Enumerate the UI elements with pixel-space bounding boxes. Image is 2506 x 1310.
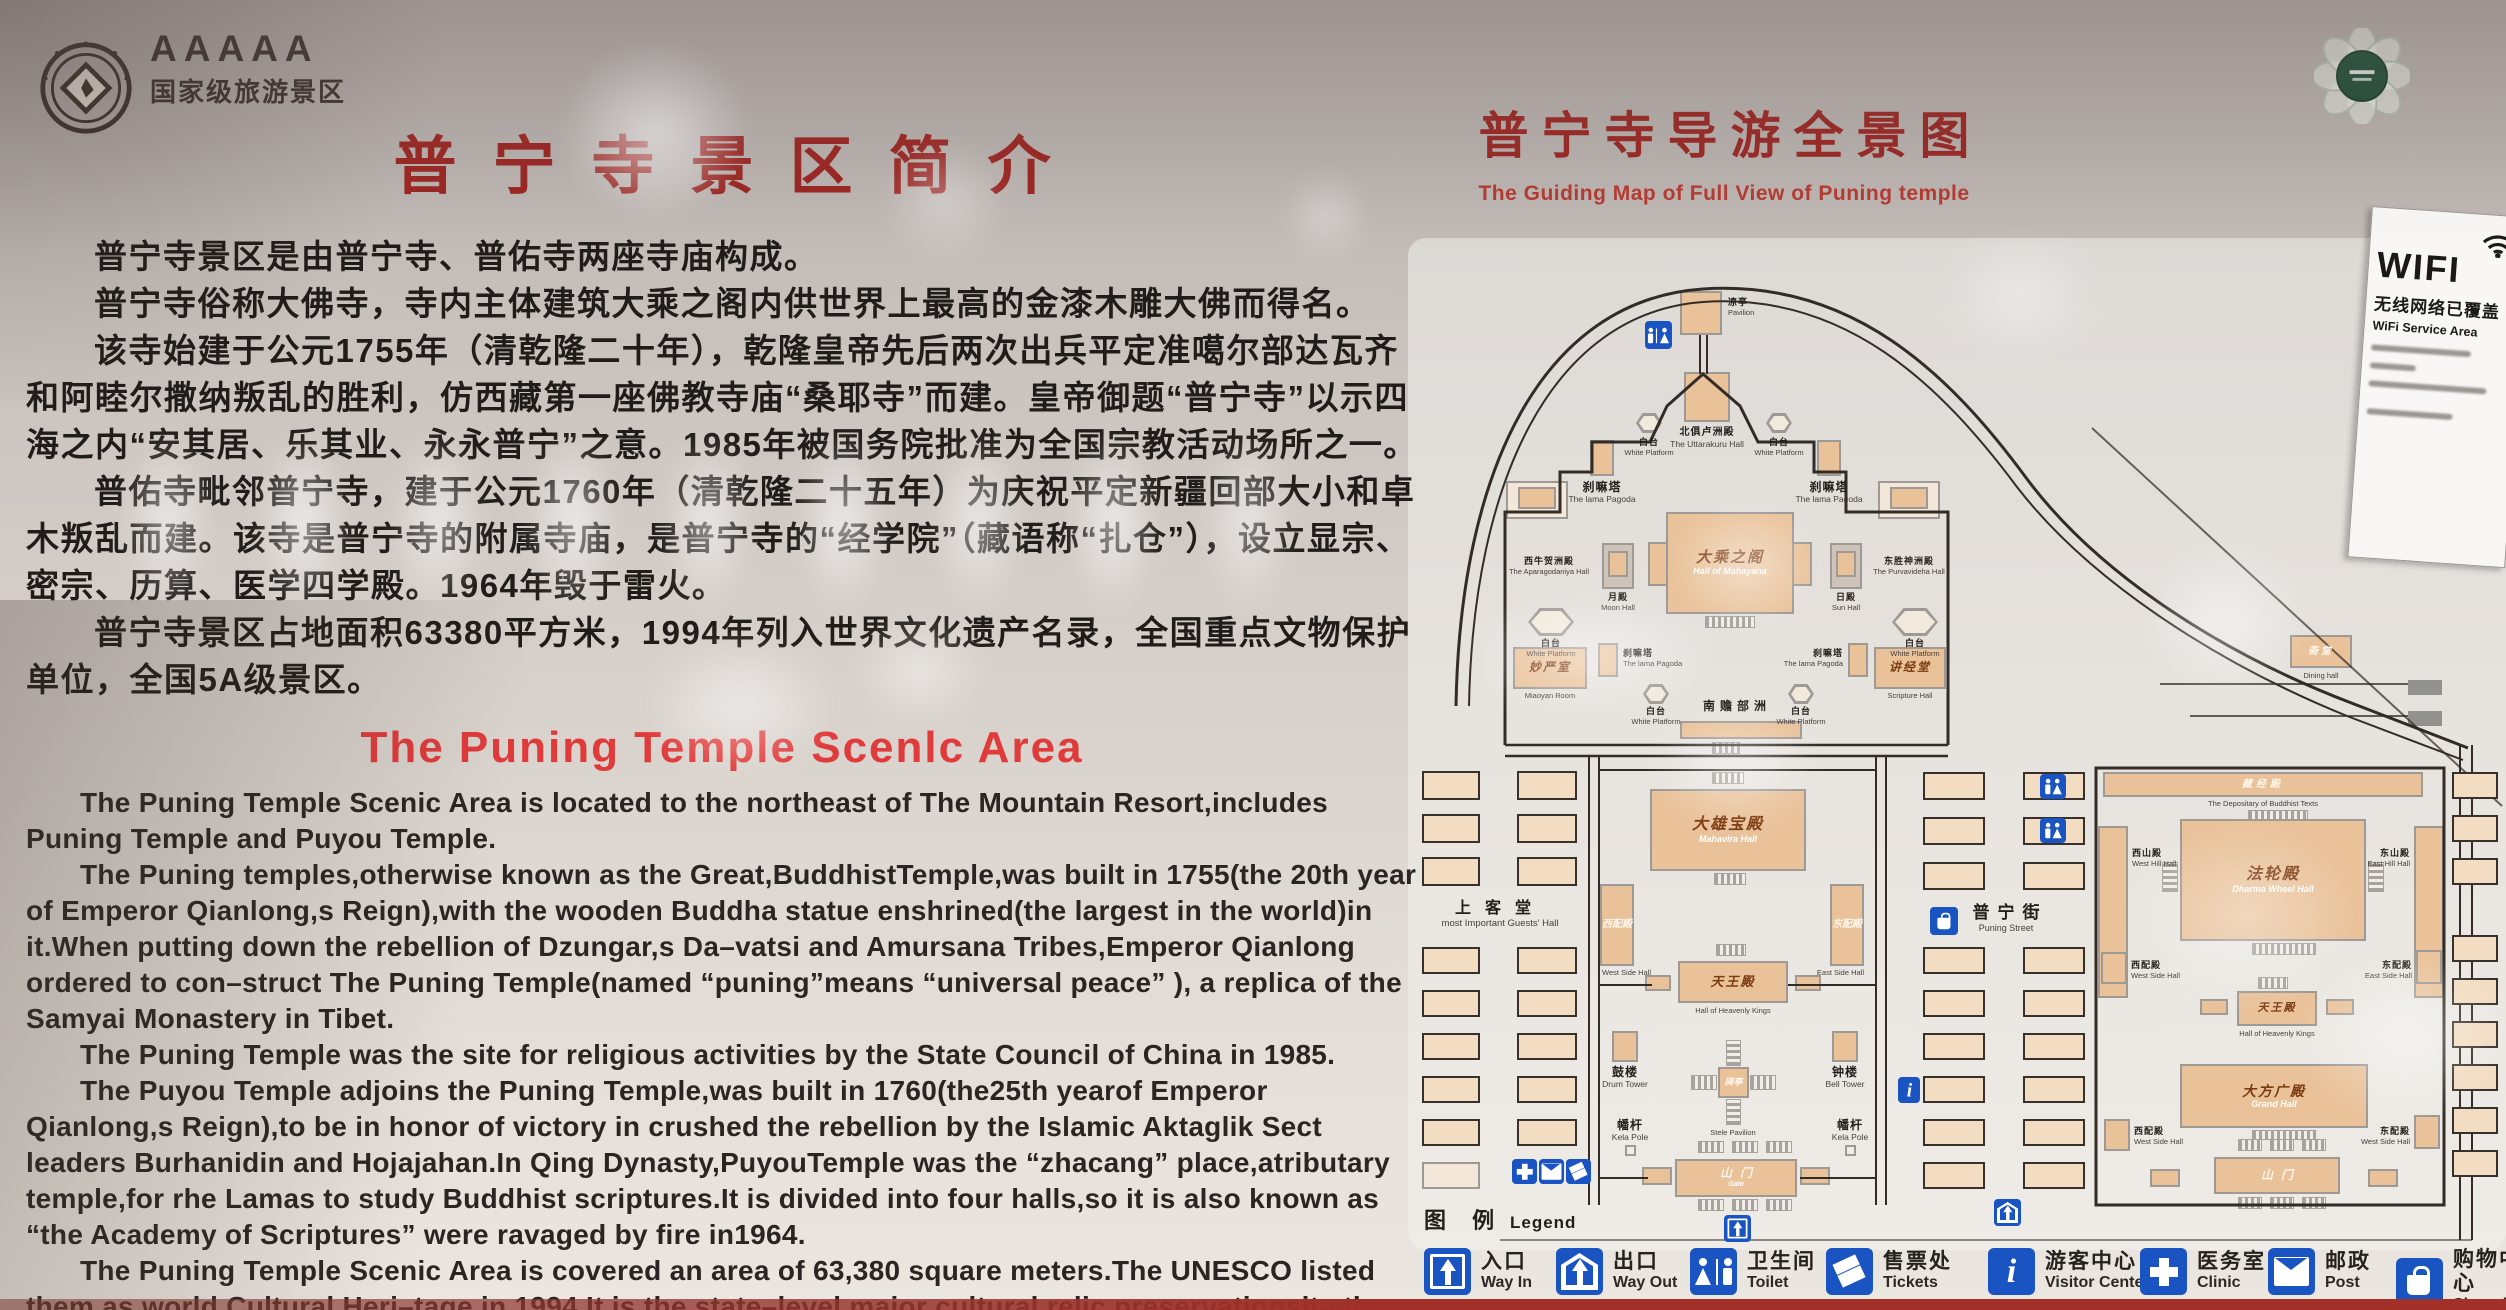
street-shops-bottom — [1923, 947, 2085, 1189]
label-gate-2: 山门 — [2216, 1159, 2338, 1192]
shop-block — [2452, 1150, 2498, 1177]
label-en: West Side Hall — [2134, 1137, 2183, 1146]
label-en: The Depositary of Buddhist Texts — [2208, 799, 2318, 808]
guest-room-block — [1422, 857, 1480, 886]
wifi-icon — [2476, 220, 2506, 259]
label-heavenly-kings-2: 天王殿 — [2239, 993, 2315, 1024]
label-cn: 凉亭 — [1728, 297, 1754, 308]
label-en: White Platform — [1776, 717, 1825, 726]
guest-room-block — [1422, 947, 1480, 974]
label-en: Dharma Wheel Hall — [2232, 884, 2314, 894]
label-en: Grand Hall — [2251, 1099, 2297, 1109]
label-cn: 讲经堂 — [1889, 661, 1931, 675]
label-en: The Purvavideha Hall — [1873, 567, 1945, 576]
label-cn: 西配殿 — [2131, 960, 2180, 971]
map-subtitle: The Guiding Map of Full View of Puning t… — [1438, 182, 2010, 206]
page-title: 普宁寺景区简介 — [26, 116, 1418, 207]
guest-room-block — [1517, 771, 1577, 800]
cn-paragraph: 普宁寺俗称大佛寺，寺内主体建筑大乘之阁内供世界上最高的金漆木雕大佛而得名。 — [26, 280, 1418, 327]
legend-cn: 购物中心 — [2453, 1248, 2506, 1296]
label-en: West Hill Hall — [2132, 859, 2176, 868]
guest-room-block — [1517, 814, 1577, 843]
shop-block — [1923, 1119, 1985, 1146]
english-title: The Puning Temple Scenlc Area — [26, 723, 1418, 773]
legend-en: Clinic — [2197, 1274, 2241, 1291]
guest-room-block — [1517, 1119, 1577, 1146]
label-cn: 山门 — [1712, 1167, 1760, 1181]
shop-block — [2452, 1021, 2498, 1048]
shop-block — [2023, 1119, 2085, 1146]
label-cn: 大雄宝殿 — [1692, 816, 1764, 834]
guest-room-block — [1517, 1033, 1577, 1060]
shop-block — [2023, 990, 2085, 1017]
label-mahayana-hall: 大乘之阁 Hall of Mahayana — [1668, 514, 1792, 612]
legend-en: Way Out — [1613, 1274, 1677, 1291]
label-miaoyan-en: Miaoyan Room — [1525, 691, 1575, 700]
label-cn: 上客堂 — [1442, 899, 1559, 918]
label-west-hill-hall: 西山殿 West Hill Hall — [2132, 848, 2176, 868]
label-east-side-hall-en: East Side Hall — [1817, 968, 1864, 977]
label-grand-hall: 大方广殿 Grand Hall — [2182, 1066, 2366, 1126]
cn-paragraph: 普宁寺景区是由普宁寺、普佑寺两座寺庙构成。 — [26, 233, 1418, 280]
label-cn: 刹嘛塔 — [1623, 648, 1682, 659]
legend-item-way-in: 入口Way In — [1424, 1248, 1532, 1295]
guest-room-block — [1422, 1076, 1480, 1103]
shop-block — [2452, 858, 2498, 885]
label-cn: 天王殿 — [1710, 975, 1755, 990]
label-en: Sun Hall — [1832, 603, 1860, 612]
shop-block — [1923, 817, 1985, 845]
label-en: East Hill Hall — [2367, 859, 2410, 868]
label-white-platform: 白台 White Platform — [1776, 706, 1825, 726]
label-west-side-hall: 西配殿 — [1602, 886, 1632, 964]
label-en: West Side Hall — [2131, 971, 2180, 980]
wifi-detail-line — [2366, 408, 2452, 420]
bldg-east-side-hall: 东配殿 — [1830, 884, 1864, 966]
label-cn: 白台 — [1526, 638, 1575, 649]
shopping-icon — [2396, 1258, 2443, 1305]
label-cn: 大方广殿 — [2242, 1083, 2306, 1099]
cn-paragraph: 普宁寺景区占地面积63380平方米，1994年列入世界文化遗产名录，全国重点文物… — [26, 609, 1418, 703]
shop-block — [2023, 1162, 2085, 1189]
label-mahavira-hall: 大雄宝殿 Mahavira Hall — [1652, 791, 1804, 869]
label-bell-tower: 钟楼 Bell Tower — [1825, 1065, 1864, 1090]
label-cn: 钟楼 — [1825, 1065, 1864, 1079]
info-icon: i — [1898, 1077, 1920, 1103]
visitor-center-icon: i — [1988, 1248, 2035, 1295]
shop-block — [1923, 990, 1985, 1017]
label-en: The lama Pagoda — [1568, 494, 1635, 504]
label-cn: 大乘之阁 — [1696, 549, 1764, 566]
label-en: most Important Guests' Hall — [1442, 918, 1559, 929]
label-cn: 月殿 — [1601, 592, 1635, 603]
label-en: The Aparagodaniya Hall — [1509, 567, 1589, 576]
legend-item-post: 邮政Post — [2268, 1248, 2371, 1295]
legend-en: Way In — [1481, 1274, 1532, 1291]
label-en: Kela Pole — [1612, 1132, 1648, 1142]
label-cn: 北俱卢洲殿 — [1670, 427, 1744, 439]
guest-rooms-top — [1422, 771, 1577, 886]
label-en: The lama Pagoda — [1795, 494, 1862, 504]
legend-title-en-text: Legend — [1510, 1213, 1576, 1233]
clinic-icon — [2140, 1248, 2187, 1295]
label-east-side-hall-3: 东配殿 West Side Hall — [2361, 1126, 2410, 1146]
label-white-platform: 白台 White Platform — [1624, 437, 1673, 457]
label-en: Miaoyan Room — [1525, 691, 1575, 700]
label-cn: 白台 — [1631, 706, 1680, 717]
bldg-dining-hall: 斋堂 — [2290, 635, 2352, 668]
bldg-heavenly-kings-2: 天王殿 — [2237, 991, 2317, 1026]
toilet-icon — [1690, 1248, 1737, 1295]
label-en: The Uttarakuru Hall — [1670, 439, 1744, 449]
guest-room-block — [1422, 1033, 1480, 1060]
way-out-icon — [1556, 1248, 1603, 1295]
label-cn: 天王殿 — [2258, 1002, 2297, 1015]
label-guests-hall: 上客堂 most Important Guests' Hall — [1442, 899, 1559, 930]
label-en: The lama Pagoda — [1784, 659, 1843, 668]
clinic-icon — [1512, 1159, 1537, 1184]
label-east-hill-hall: 东山殿 East Hill Hall — [2367, 848, 2410, 868]
legend-en: Post — [2325, 1274, 2360, 1291]
legend-en: Tickets — [1883, 1274, 1938, 1291]
label-drum-tower: 鼓楼 Drum Tower — [1602, 1065, 1648, 1090]
label-en: Puning Street — [1965, 923, 2048, 934]
label-cn: 法轮殿 — [2246, 866, 2300, 884]
label-depositary-en: The Depositary of Buddhist Texts — [2208, 799, 2318, 808]
guest-room-block — [1517, 990, 1577, 1017]
label-cn: 藏经殿 — [2242, 779, 2284, 791]
guest-room-block — [1422, 771, 1480, 800]
wifi-detail-line — [2368, 380, 2486, 394]
label-east-side-hall: 东配殿 — [1832, 886, 1862, 964]
legend-item-clinic: 医务室Clinic — [2140, 1248, 2266, 1295]
label-cn: 白台 — [1890, 638, 1939, 649]
label-cn: 南赡部洲 — [1703, 699, 1771, 713]
label-dining-hall: 斋堂 — [2292, 637, 2350, 666]
toilet-icon — [1645, 321, 1672, 349]
cn-paragraph: 该寺始建于公元1755年（清乾隆二十年），乾隆皇帝先后两次出兵平定准噶尔部达瓦齐… — [26, 327, 1418, 468]
legend-cn: 医务室 — [2197, 1250, 2266, 1274]
bldg-grand-hall: 大方广殿 Grand Hall — [2180, 1064, 2368, 1128]
label-lama-pagoda: 刹嘛塔 The lama Pagoda — [1795, 480, 1862, 505]
label-en: White Platform — [1526, 649, 1575, 658]
bldg-west-side-hall: 西配殿 — [1600, 884, 1634, 966]
legend-cn: 卫生间 — [1747, 1250, 1816, 1274]
legend-item-way-out: 出口Way Out — [1556, 1248, 1677, 1295]
bldg-depositary: 藏经殿 — [2103, 772, 2423, 797]
guest-room-block — [1517, 857, 1577, 886]
label-stele-pavilion: 碑亭 — [1720, 1069, 1747, 1096]
legend-cn: 游客中心 — [2045, 1250, 2150, 1274]
legend-title-en: Legend — [1510, 1213, 1576, 1233]
label-en: East Side Hall — [2365, 971, 2412, 980]
label-white-platform: 白台 White Platform — [1754, 437, 1803, 457]
legend-cn: 售票处 — [1883, 1250, 1952, 1274]
legend-cn: 入口 — [1481, 1250, 1532, 1274]
bldg-mahayana-hall: 大乘之阁 Hall of Mahayana — [1666, 512, 1794, 614]
label-cn: 斋堂 — [2308, 646, 2334, 658]
label-en: Stele Pavilion — [1710, 1128, 1755, 1137]
shop-block — [2452, 935, 2498, 962]
shop-block — [2452, 1064, 2498, 1091]
street-shops-right-bottom — [2452, 935, 2498, 1177]
label-cn: 普宁街 — [1965, 903, 2048, 923]
label-kela-pole: 幡杆 Kela Pole — [1832, 1118, 1868, 1143]
label-puning-street: 普宁街 Puning Street — [1965, 903, 2048, 934]
label-dining-hall-en: Dining hall — [2303, 671, 2338, 680]
label-white-platform: 白台 White Platform — [1631, 706, 1680, 726]
shop-block — [2023, 947, 2085, 974]
label-en: Pavilion — [1728, 308, 1754, 317]
label-en: White Platform — [1631, 717, 1680, 726]
bldg-heavenly-kings-hall: 天王殿 — [1678, 961, 1788, 1003]
label-heavenly-kings-en: Hall of Heavenly Kings — [1695, 1006, 1770, 1015]
label-en: White Platform — [1754, 448, 1803, 457]
label-lama-pagoda: 刹嘛塔 The lama Pagoda — [1784, 648, 1843, 668]
shop-block — [1923, 772, 1985, 800]
cn-paragraph: 普佑寺毗邻普宁寺，建于公元1760年（清乾隆二十五年）为庆祝平定新疆回部大小和卓… — [26, 468, 1418, 609]
label-cn: 幡杆 — [1832, 1118, 1868, 1132]
legend-en: Visitor Center — [2045, 1274, 2150, 1291]
bldg-gate-2: 山门 — [2214, 1157, 2340, 1194]
en-paragraph: The Puning Temple Scenic Area is located… — [26, 785, 1418, 857]
wifi-detail-line — [2371, 344, 2471, 357]
label-pavilion: 凉亭 Pavilion — [1728, 297, 1754, 317]
label-cn: 日殿 — [1832, 592, 1860, 603]
label-stele-pavilion-en: Stele Pavilion — [1710, 1128, 1755, 1137]
label-cn: 刹嘛塔 — [1784, 648, 1843, 659]
en-paragraph: The Puning temples,otherwise known as th… — [26, 857, 1418, 1037]
badge-stars: AAAAA — [150, 28, 346, 70]
label-cn: 白台 — [1776, 706, 1825, 717]
label-cn: 刹嘛塔 — [1795, 480, 1862, 494]
label-cn: 东胜神洲殿 — [1873, 556, 1945, 567]
legend-item-toilet: 卫生间Toilet — [1690, 1248, 1816, 1295]
shop-block — [2452, 1107, 2498, 1134]
bldg-gate: 山门 Gate — [1675, 1159, 1797, 1197]
intro-panel: 普宁寺景区简介 普宁寺景区是由普宁寺、普佑寺两座寺庙构成。 普宁寺俗称大佛寺，寺… — [26, 116, 1418, 1310]
bldg-dharma-wheel-hall: 法轮殿 Dharma Wheel Hall — [2180, 819, 2366, 941]
legend-title: 图 例 — [1424, 1208, 1504, 1234]
legend-item-tickets: 售票处Tickets — [1826, 1248, 1952, 1295]
shop-block — [1923, 1033, 1985, 1060]
label-cn: 东山殿 — [2367, 848, 2410, 859]
label-cn: 白台 — [1754, 437, 1803, 448]
badge-subtitle: 国家级旅游景区 — [150, 72, 346, 109]
toilet-icon — [2040, 818, 2066, 843]
bldg-mahavira-hall: 大雄宝殿 Mahavira Hall — [1650, 789, 1806, 871]
label-en: Drum Tower — [1602, 1079, 1648, 1089]
guest-room-block — [1517, 1076, 1577, 1103]
post-icon — [2268, 1248, 2315, 1295]
label-cn: 妙严室 — [1529, 661, 1571, 675]
label-east-side-hall-2: 东配殿 East Side Hall — [2365, 960, 2412, 980]
guest-room-block — [1422, 1119, 1480, 1146]
shopping-street-icon — [1930, 907, 1958, 935]
label-moon-hall: 月殿 Moon Hall — [1601, 592, 1635, 612]
label-en: White Platform — [1890, 649, 1939, 658]
legend-title-cn: 图 例 — [1424, 1208, 1504, 1234]
legend-item-visitor-center: i 游客中心Visitor Center — [1988, 1248, 2150, 1295]
label-heavenly-kings: 天王殿 — [1680, 963, 1786, 1001]
label-en: Mahavira Hall — [1699, 834, 1757, 844]
label-en: West Side Hall — [1602, 968, 1651, 977]
label-en: Hall of Heavenly Kings — [1695, 1006, 1770, 1015]
label-dharma-wheel-hall: 法轮殿 Dharma Wheel Hall — [2182, 821, 2364, 939]
guest-room-block — [1422, 814, 1480, 843]
label-cn: 西配殿 — [1602, 919, 1632, 931]
label-cn: 东配殿 — [2361, 1126, 2410, 1137]
label-cn: 西山殿 — [2132, 848, 2176, 859]
label-cn: 东配殿 — [2365, 960, 2412, 971]
shop-block — [1923, 1076, 1985, 1103]
tickets-icon — [1566, 1159, 1591, 1184]
label-kela-pole: 幡杆 Kela Pole — [1612, 1118, 1648, 1143]
guest-room-block — [1517, 947, 1577, 974]
label-en: Hall of Mahayana — [1693, 566, 1767, 576]
post-icon — [1539, 1159, 1564, 1184]
label-sutra-en: Scripture Hall — [1887, 691, 1932, 700]
label-cn: 东配殿 — [1832, 919, 1862, 931]
map-title-block: 普宁寺导游全景图 The Guiding Map of Full View of… — [1438, 96, 2010, 206]
shop-block — [1923, 862, 1985, 890]
toilet-icon — [2040, 774, 2066, 799]
label-white-platform: 白台 White Platform — [1526, 638, 1575, 658]
shop-block — [2452, 978, 2498, 1005]
legend-cn: 邮政 — [2325, 1250, 2371, 1274]
guest-rooms-bottom — [1422, 947, 1577, 1146]
label-cn: 鼓楼 — [1602, 1065, 1648, 1079]
en-paragraph: The Puning Temple was the site for relig… — [26, 1037, 1418, 1073]
label-lama-pagoda: 刹嘛塔 The lama Pagoda — [1568, 480, 1635, 505]
way-in-icon — [1424, 1248, 1471, 1295]
label-en: White Platform — [1624, 448, 1673, 457]
shop-block — [1923, 947, 1985, 974]
signboard-photo: AAAAA 国家级旅游景区 普宁寺景区简介 普宁寺景区是由普宁寺、普佑寺两座寺庙… — [0, 0, 2506, 1310]
label-cn: 山门 — [2253, 1169, 2301, 1183]
way-in-icon — [1724, 1215, 1751, 1242]
label-en: Moon Hall — [1601, 603, 1635, 612]
label-sun-hall: 日殿 Sun Hall — [1832, 592, 1860, 612]
label-en: West Side Hall — [2361, 1137, 2410, 1146]
label-purvavideha-hall: 东胜神洲殿 The Purvavideha Hall — [1873, 556, 1945, 576]
label-nanzhanbuzhou: 南赡部洲 — [1703, 699, 1771, 713]
label-en: Dining hall — [2303, 671, 2338, 680]
shop-block — [2452, 772, 2498, 799]
label-en: East Side Hall — [1817, 968, 1864, 977]
street-shops-right-top — [2452, 772, 2498, 885]
label-cn: 白台 — [1624, 437, 1673, 448]
shop-block — [2023, 862, 2085, 890]
wifi-detail-line — [2370, 362, 2416, 371]
label-west-side-hall-en: West Side Hall — [1602, 968, 1651, 977]
shop-block — [2452, 815, 2498, 842]
bottom-red-strip — [0, 1299, 2506, 1310]
wifi-sign: WIFI 无线网络已覆盖 WiFi Service Area — [2347, 206, 2506, 568]
label-en: Bell Tower — [1825, 1079, 1864, 1089]
label-uttarakuru-hall: 北俱卢洲殿 The Uttarakuru Hall — [1670, 427, 1744, 449]
legend-en: Toilet — [1747, 1274, 1788, 1291]
label-en: Scripture Hall — [1887, 691, 1932, 700]
guest-room-block — [1422, 990, 1480, 1017]
label-white-platform: 白台 White Platform — [1890, 638, 1939, 658]
label-depositary: 藏经殿 — [2105, 774, 2421, 795]
label-cn: 幡杆 — [1612, 1118, 1648, 1132]
en-paragraph: The Puyou Temple adjoins the Puning Temp… — [26, 1073, 1418, 1253]
label-en: Hall of Heavenly Kings — [2239, 1029, 2314, 1038]
label-cn: 碑亭 — [1724, 1077, 1742, 1087]
lotus-logo-icon — [2314, 28, 2410, 124]
legend-cn: 出口 — [1613, 1250, 1677, 1274]
label-en: The lama Pagoda — [1623, 659, 1682, 668]
label-aparagodaniya-hall: 西牛贺洲殿 The Aparagodaniya Hall — [1509, 556, 1589, 576]
label-lama-pagoda: 刹嘛塔 The lama Pagoda — [1623, 648, 1682, 668]
label-west-side-hall-2: 西配殿 West Side Hall — [2131, 960, 2180, 980]
label-en: Gate — [1728, 1181, 1744, 1189]
shop-block — [2023, 1076, 2085, 1103]
label-cn: 西配殿 — [2134, 1126, 2183, 1137]
national-scenic-badge: AAAAA 国家级旅游景区 — [30, 28, 346, 109]
label-heavenly-kings-2-en: Hall of Heavenly Kings — [2239, 1029, 2314, 1038]
map-title: 普宁寺导游全景图 — [1438, 96, 2010, 168]
label-west-side-hall-3: 西配殿 West Side Hall — [2134, 1126, 2183, 1146]
shop-block — [1923, 1162, 1985, 1189]
shop-block — [2023, 1033, 2085, 1060]
label-cn: 西牛贺洲殿 — [1509, 556, 1589, 567]
bldg-stele-pavilion: 碑亭 — [1718, 1067, 1749, 1098]
tickets-icon — [1826, 1248, 1873, 1295]
way-out-icon — [1994, 1199, 2021, 1226]
label-cn: 刹嘛塔 — [1568, 480, 1635, 494]
label-gate: 山门 Gate — [1677, 1161, 1795, 1195]
label-en: Kela Pole — [1832, 1132, 1868, 1142]
